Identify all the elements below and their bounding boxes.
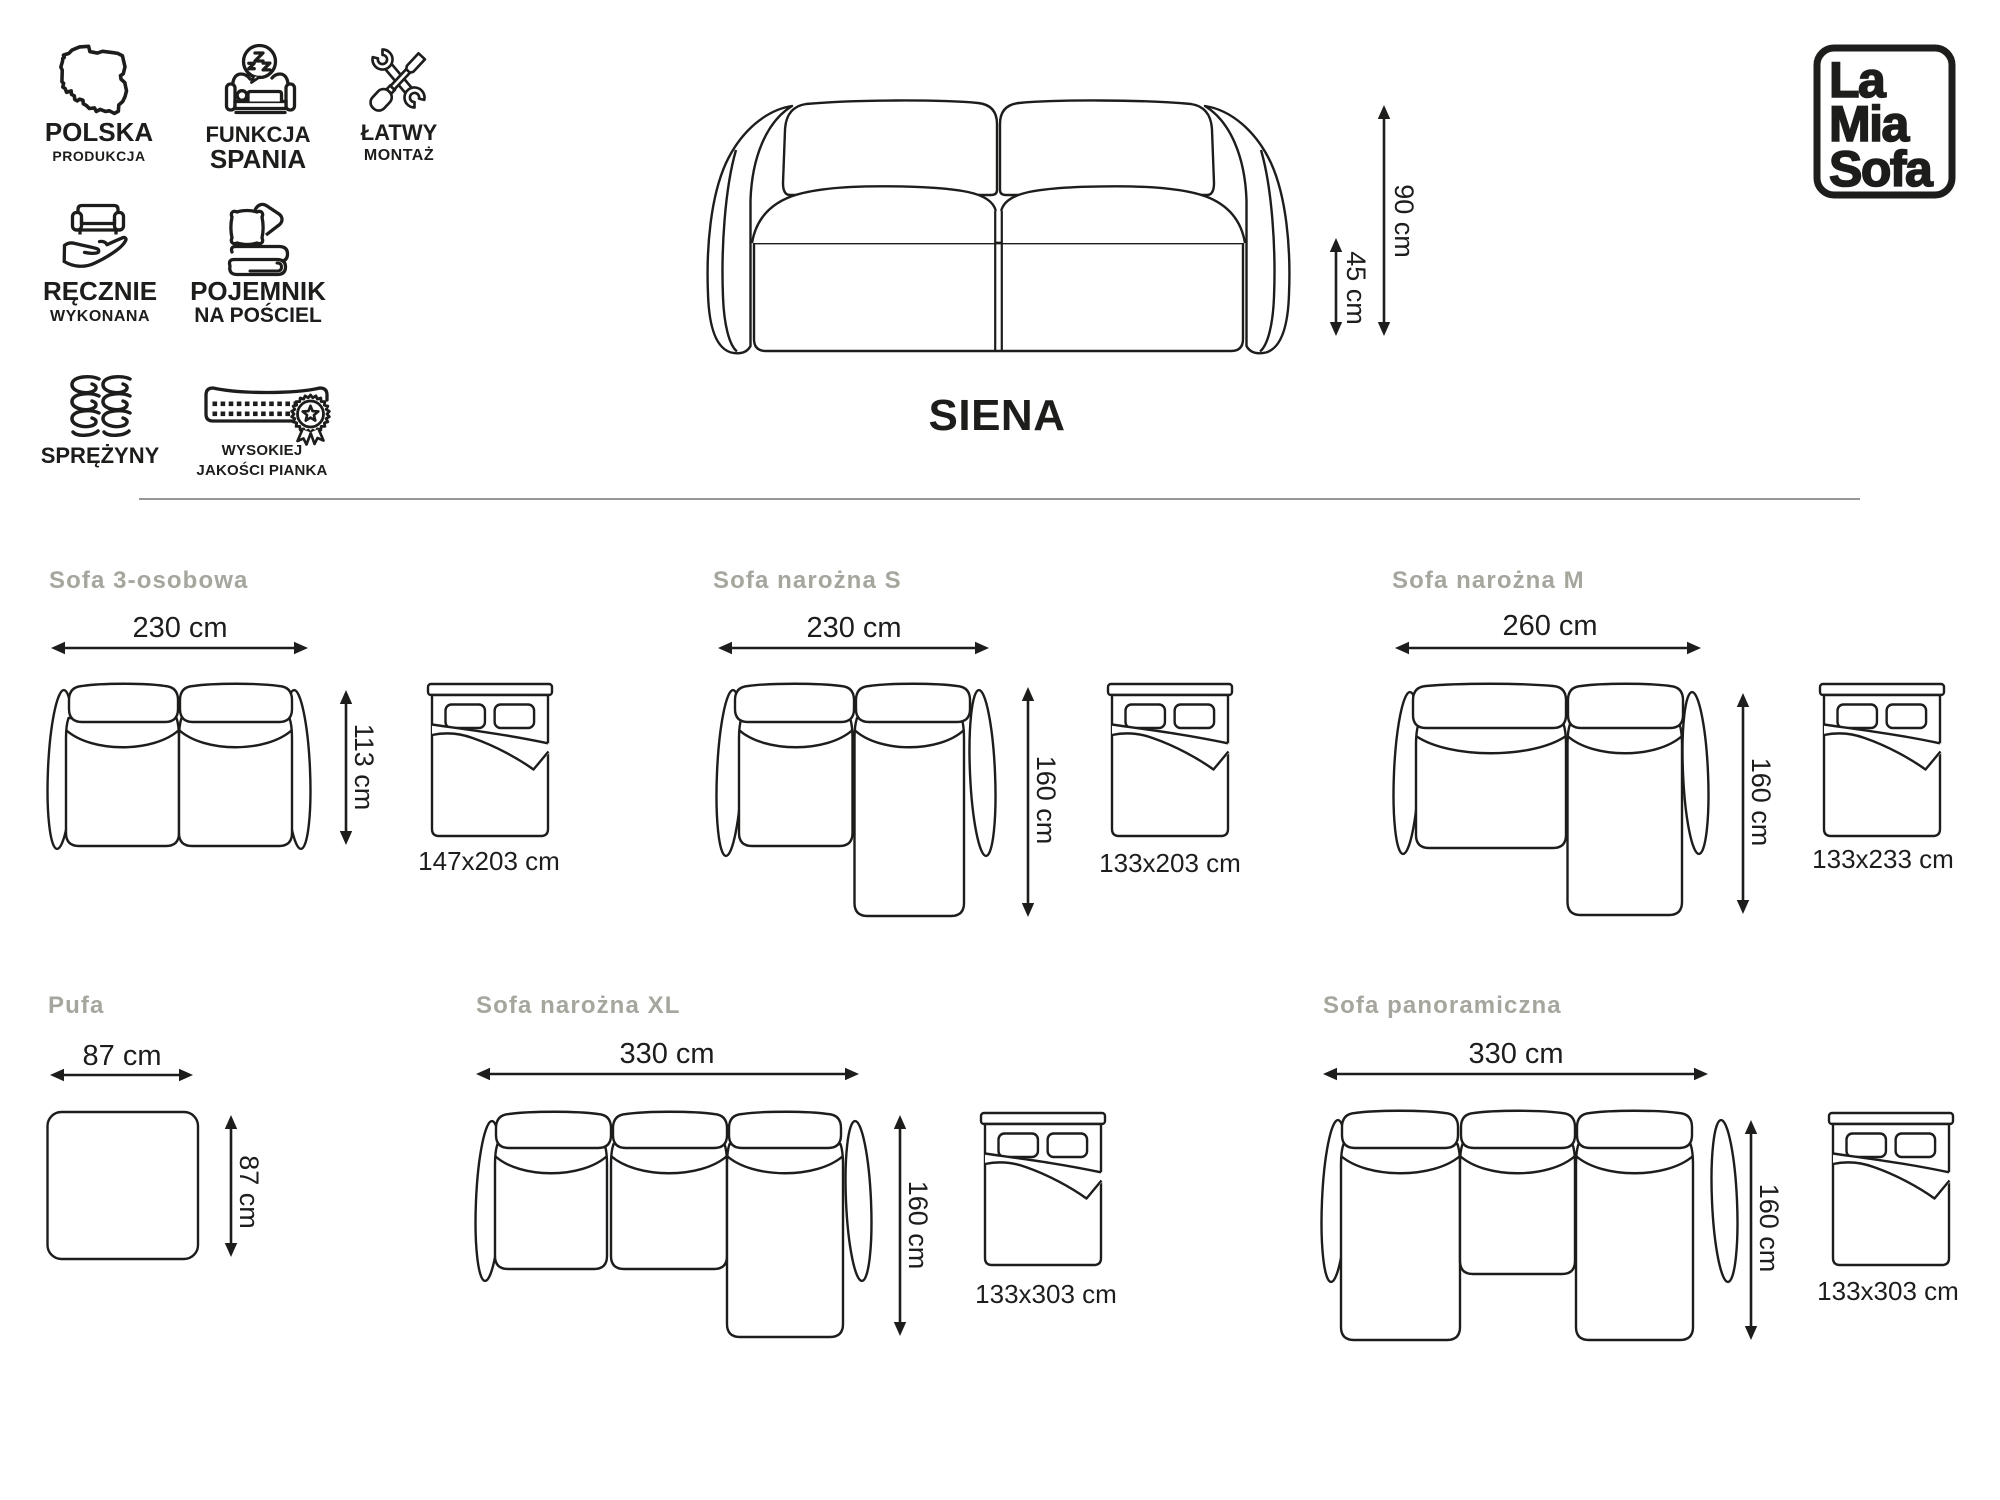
svg-text:WYKONANA: WYKONANA bbox=[50, 308, 150, 325]
svg-text:113 cm: 113 cm bbox=[349, 724, 379, 811]
svg-text:160 cm: 160 cm bbox=[1031, 756, 1061, 845]
svg-text:230 cm: 230 cm bbox=[806, 612, 901, 644]
svg-text:87 cm: 87 cm bbox=[83, 1040, 162, 1072]
svg-text:JAKOŚCI PIANKA: JAKOŚCI PIANKA bbox=[196, 461, 327, 479]
svg-text:RĘCZNIE: RĘCZNIE bbox=[43, 276, 157, 306]
svg-text:Sofa: Sofa bbox=[1829, 141, 1934, 197]
svg-text:330 cm: 330 cm bbox=[619, 1038, 714, 1070]
svg-text:Sofa narożna S: Sofa narożna S bbox=[713, 567, 902, 594]
svg-text:Sofa panoramiczna: Sofa panoramiczna bbox=[1323, 992, 1562, 1019]
svg-text:Pufa: Pufa bbox=[48, 992, 104, 1019]
svg-text:MONTAŻ: MONTAŻ bbox=[364, 146, 434, 164]
svg-text:160 cm: 160 cm bbox=[1754, 1184, 1784, 1273]
svg-text:133x233 cm: 133x233 cm bbox=[1812, 844, 1954, 874]
svg-text:260 cm: 260 cm bbox=[1502, 610, 1597, 642]
svg-text:Sofa 3-osobowa: Sofa 3-osobowa bbox=[49, 567, 248, 594]
svg-text:90 cm: 90 cm bbox=[1389, 184, 1419, 258]
svg-text:45 cm: 45 cm bbox=[1341, 251, 1371, 325]
svg-text:133x303 cm: 133x303 cm bbox=[1817, 1276, 1959, 1306]
svg-text:Sofa narożna XL: Sofa narożna XL bbox=[476, 992, 681, 1019]
svg-text:NA POŚCIEL: NA POŚCIEL bbox=[194, 303, 322, 327]
svg-text:160 cm: 160 cm bbox=[903, 1181, 933, 1270]
svg-text:WYSOKIEJ: WYSOKIEJ bbox=[222, 442, 303, 459]
svg-text:SIENA: SIENA bbox=[929, 391, 1066, 440]
svg-text:SPANIA: SPANIA bbox=[210, 144, 307, 174]
svg-text:87 cm: 87 cm bbox=[234, 1155, 264, 1229]
svg-text:PRODUKCJA: PRODUKCJA bbox=[52, 148, 145, 164]
svg-text:133x203 cm: 133x203 cm bbox=[1099, 848, 1241, 878]
svg-text:POLSKA: POLSKA bbox=[45, 117, 154, 147]
svg-text:230 cm: 230 cm bbox=[132, 612, 227, 644]
svg-text:Sofa narożna M: Sofa narożna M bbox=[1392, 567, 1585, 594]
svg-text:POJEMNIK: POJEMNIK bbox=[190, 276, 326, 306]
svg-text:147x203 cm: 147x203 cm bbox=[418, 846, 560, 876]
svg-text:SPRĘŻYNY: SPRĘŻYNY bbox=[41, 443, 160, 468]
svg-text:ŁATWY: ŁATWY bbox=[361, 120, 438, 145]
svg-text:160 cm: 160 cm bbox=[1746, 758, 1776, 847]
svg-text:133x303 cm: 133x303 cm bbox=[975, 1279, 1117, 1309]
svg-text:330 cm: 330 cm bbox=[1468, 1038, 1563, 1070]
